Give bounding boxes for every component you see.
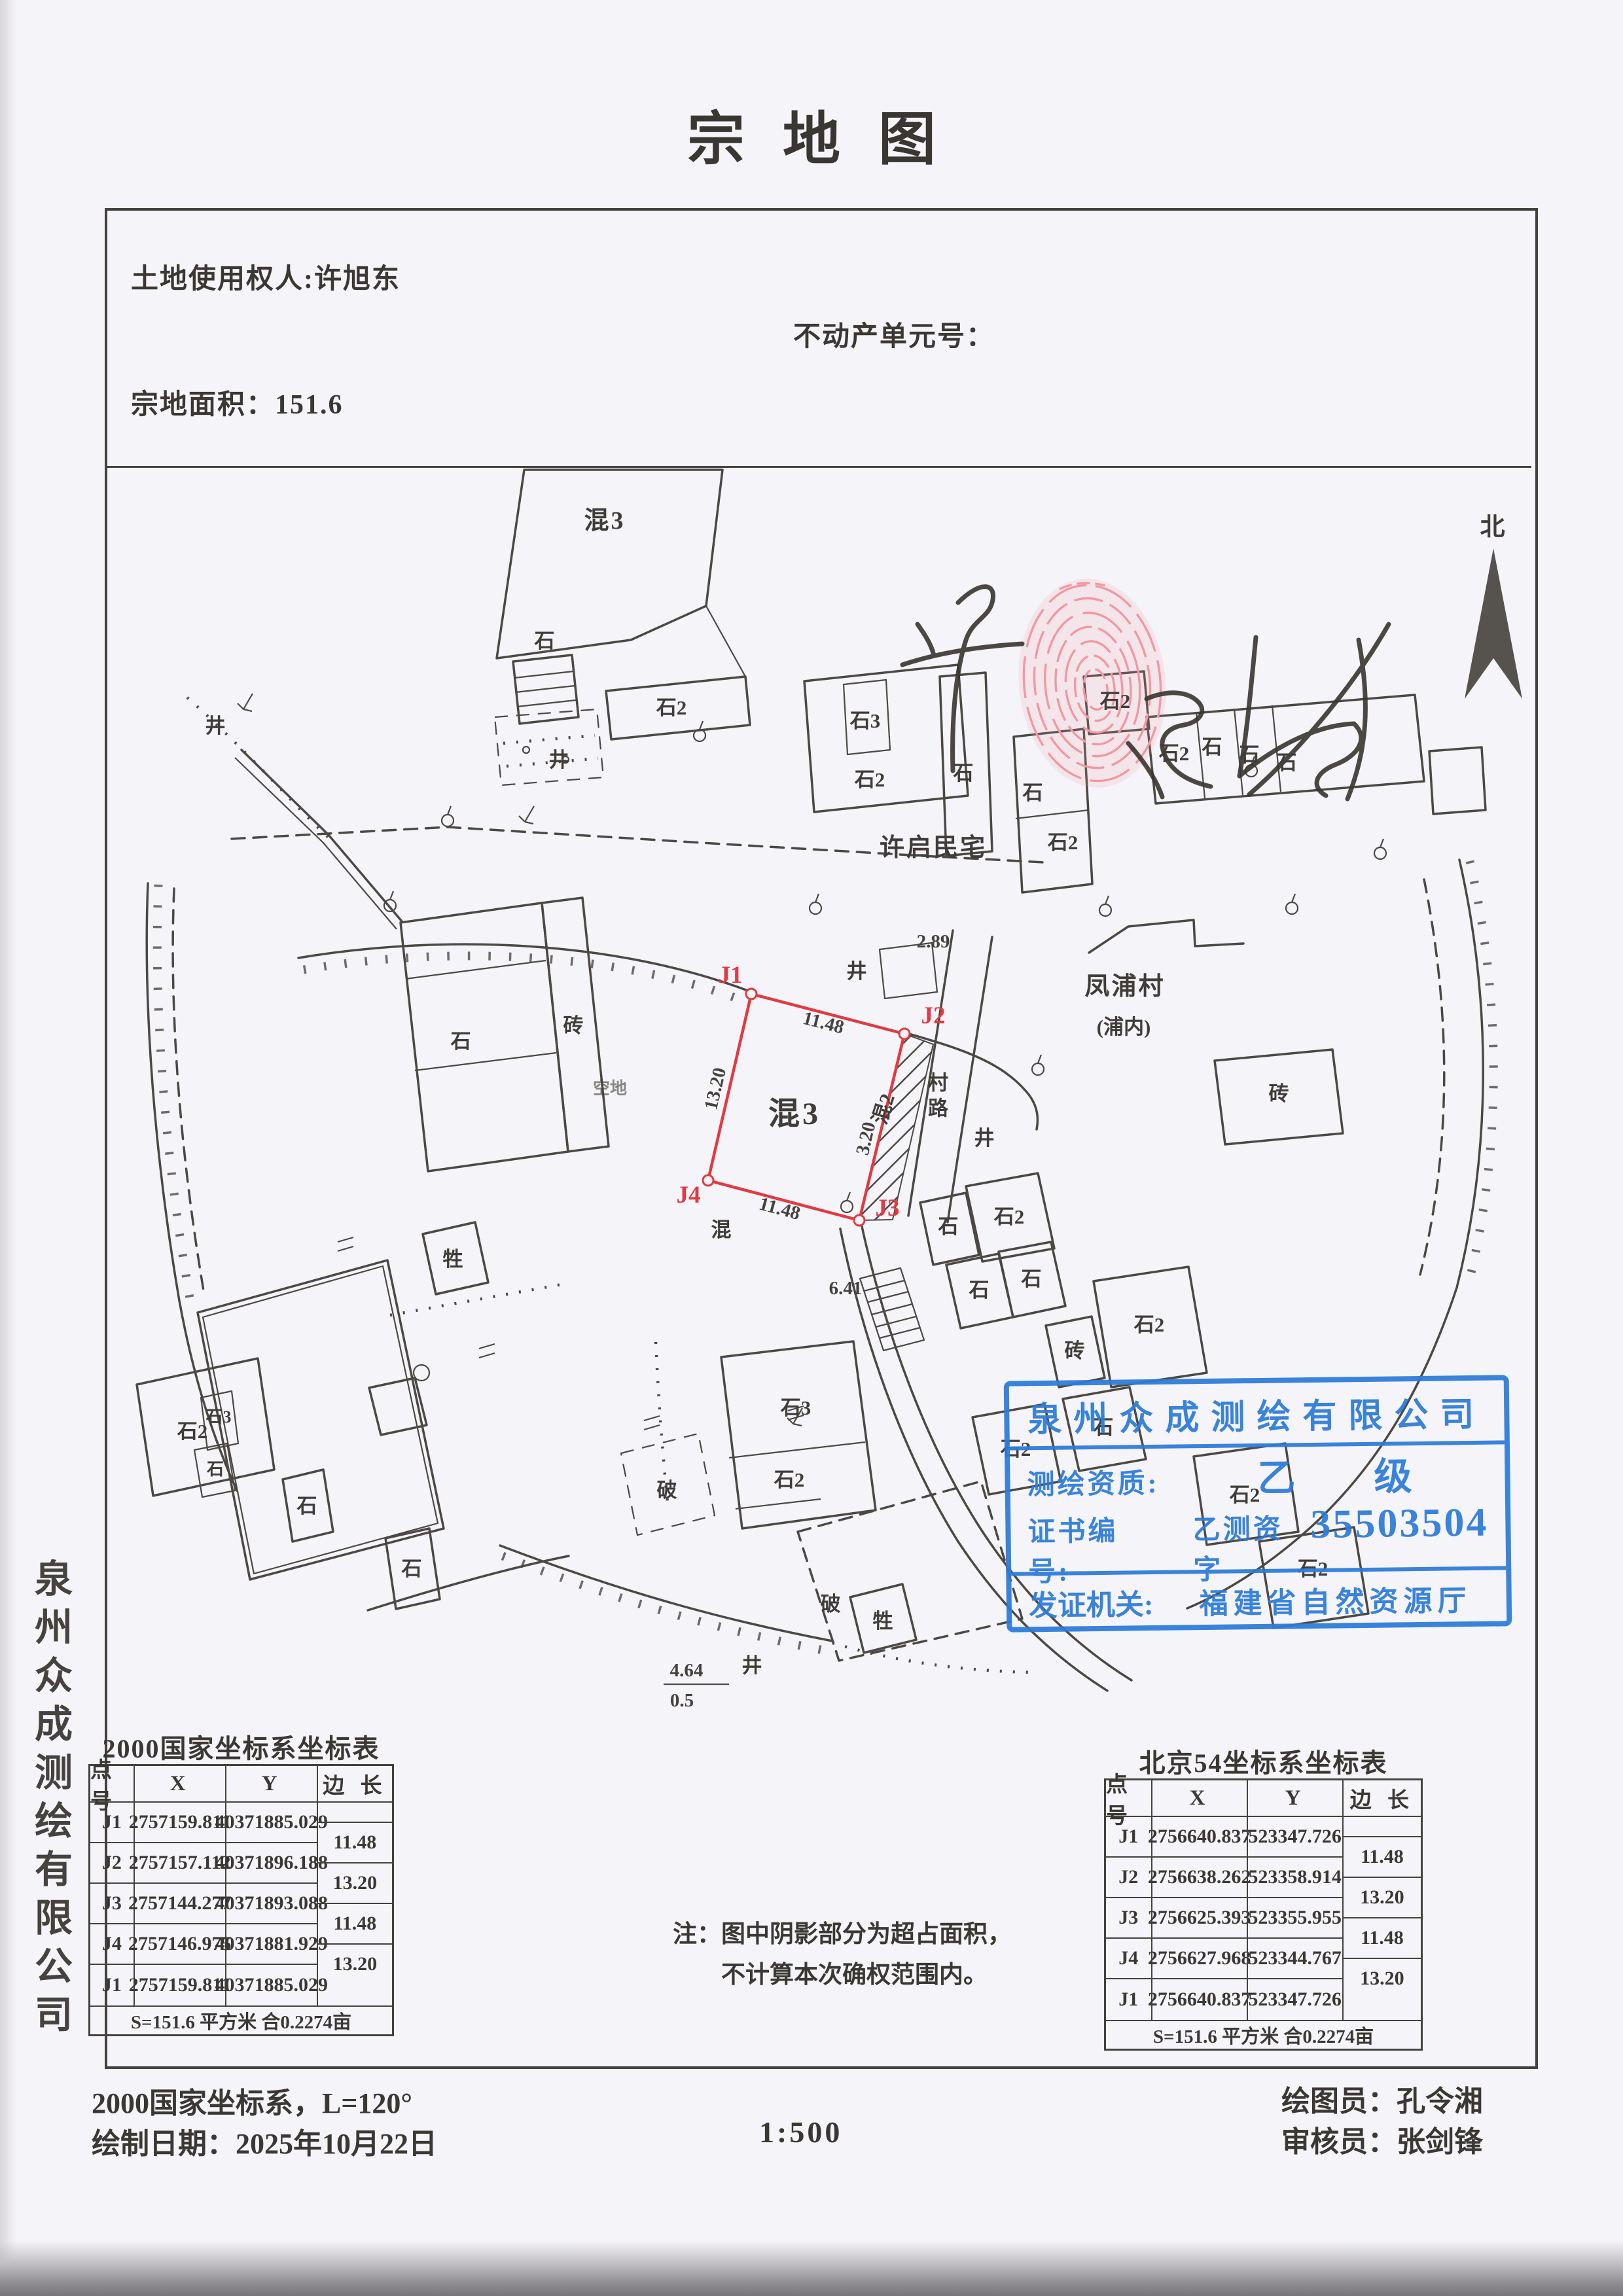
land-label: 石2	[1099, 690, 1131, 713]
scan-edge-bottom	[0, 2241, 1623, 2296]
parcel-area-field: 宗地面积：151.6	[131, 382, 344, 422]
surveyor-stamp: 泉州众成测绘有限公司 测绘资质: 乙 级 证书编号: 乙测资字 35503504…	[1004, 1375, 1512, 1632]
land-label: 石2	[1133, 1313, 1165, 1336]
dim-annotation: 2.89	[917, 931, 950, 952]
land-label: 砖	[1269, 1082, 1289, 1105]
map-scale: 1:500	[759, 2115, 842, 2149]
coord-table-2000-title: 2000国家坐标系坐标表	[88, 1727, 394, 1764]
land-label: 石2	[854, 768, 885, 791]
col-header: 点 号	[1106, 1780, 1151, 1816]
table-row: J2 2756638.262 523358.914	[1106, 1858, 1342, 1898]
edge-length-column: 边 长 11.48 13.20 11.48 13.20	[317, 1766, 392, 2005]
north-arrow-icon	[1465, 548, 1522, 699]
land-label: 破	[657, 1479, 677, 1502]
dim-annotation: 0.5	[670, 1690, 694, 1711]
coord-table-bj54-title: 北京54坐标系坐标表	[1104, 1742, 1423, 1778]
stamp-cert-label: 证书编号:	[1027, 1508, 1158, 1589]
point-label-j3: J3	[876, 1195, 900, 1222]
land-label: 石3	[849, 709, 881, 732]
dim-top: 11.48	[800, 1008, 846, 1038]
stamp-company: 泉州众成测绘有限公司	[1009, 1380, 1505, 1450]
table-row: J2 2757157.112 40371896.188	[90, 1843, 317, 1884]
edge-cell: 13.20	[318, 1945, 392, 1984]
land-label: 混	[711, 1218, 732, 1241]
land-label: 石	[1239, 743, 1260, 766]
land-label: 混3	[584, 507, 625, 535]
header-map-divider	[106, 466, 1531, 468]
dim-annotation: 6.41	[829, 1278, 863, 1299]
well-symbol: 井	[742, 1654, 762, 1677]
edge-cell: 11.48	[318, 1823, 392, 1863]
well-symbol: 井	[549, 749, 569, 771]
land-label: 石	[1276, 751, 1297, 774]
coord-table-bj54: 北京54坐标系坐标表 点 号 X Y J1 2756640.837 523347…	[1104, 1742, 1423, 2051]
stamp-middle-section: 测绘资质: 乙 级 证书编号: 乙测资字 35503504	[1010, 1444, 1506, 1576]
col-header: Y	[1247, 1780, 1342, 1816]
margin-company-name: 泉州众成测绘有限公司	[22, 1559, 77, 2082]
stamp-grade-suffix: 级	[1374, 1445, 1412, 1501]
coord-table-2000-frame: 点 号 X Y J1 2757159.811 40371885.029 J2 2…	[88, 1764, 394, 2036]
land-label: 牲	[873, 1610, 893, 1633]
land-label: 石2	[1158, 742, 1190, 765]
land-label: 石	[1021, 1267, 1042, 1290]
table-row: J1 2756640.837 523347.726	[1106, 1979, 1342, 2020]
parcel-type-label: 混3	[768, 1097, 821, 1131]
table-row: J1 2756640.837 523347.726	[1106, 1817, 1342, 1858]
land-label: 石2	[177, 1420, 208, 1443]
land-label: 石3	[780, 1396, 811, 1419]
point-label-j2: J2	[921, 1002, 946, 1029]
land-label: 砖	[563, 1014, 584, 1037]
stamp-grade-label: 测绘资质:	[1027, 1461, 1160, 1502]
owner-field: 土地使用权人:许旭东	[131, 256, 401, 296]
table-header-row: 点 号 X Y	[1106, 1780, 1342, 1817]
north-arrow: 北	[1465, 514, 1522, 699]
land-label: 石2	[774, 1468, 805, 1491]
road-label: 村路	[921, 1072, 951, 1123]
well-symbol: 井	[847, 960, 867, 983]
note-line-2: 不计算本次确权范围内。	[721, 1954, 988, 1990]
land-label: 石2	[993, 1205, 1025, 1228]
coord-system-note: 2000国家坐标系，L=120°	[92, 2079, 412, 2121]
point-label-j4: J4	[677, 1182, 701, 1209]
stamp-issuer-label: 发证机关:	[1028, 1581, 1153, 1624]
land-label: 石	[1202, 735, 1222, 758]
col-header: X	[1151, 1780, 1247, 1816]
edge-cell: 13.20	[318, 1863, 392, 1904]
land-label: 石	[534, 629, 555, 652]
residence-label: 许启民宅	[880, 834, 987, 862]
table-area-footer: S=151.6 平方米 合0.2274亩	[1106, 2020, 1421, 2049]
table-area-footer: S=151.6 平方米 合0.2274亩	[90, 2005, 392, 2034]
land-label: 石2	[1047, 831, 1079, 854]
land-label: 牲	[443, 1248, 463, 1271]
col-header: X	[134, 1766, 225, 1801]
reviewer: 审核员：张剑锋	[1281, 2118, 1483, 2160]
scanned-parcel-map-page: { "title": "宗地图", "header": { "owner": "…	[0, 0, 1623, 2296]
page-title: 宗地图	[0, 93, 1623, 176]
table-row: J4 2756627.968 523344.767	[1106, 1939, 1342, 1979]
edge-cell: 11.48	[1344, 1837, 1421, 1878]
table-row: J1 2757159.811 40371885.029	[90, 1965, 317, 2005]
stamp-cert-number: 35503504	[1310, 1500, 1489, 1548]
unit-number-field: 不动产单元号：	[793, 314, 995, 354]
scan-edge-left	[0, 0, 17, 2296]
land-label: 石3	[205, 1407, 231, 1426]
table-header-row: 点 号 X Y	[90, 1766, 317, 1803]
land-label: 石	[1022, 781, 1043, 804]
land-label: 空地	[593, 1078, 627, 1098]
well-symbol: 井	[974, 1127, 995, 1150]
edge-cell: 13.20	[1344, 1878, 1421, 1918]
well-symbol: 井	[205, 715, 226, 737]
land-label: 石	[206, 1460, 224, 1479]
land-label: 石	[401, 1557, 422, 1580]
land-label: 石	[450, 1030, 471, 1053]
table-row: J4 2757146.975 40371881.929	[90, 1924, 317, 1965]
stamp-cert-prefix: 乙测资字	[1192, 1506, 1311, 1587]
land-label: 石	[953, 762, 974, 785]
village-subname: (浦内)	[1097, 1016, 1151, 1038]
edge-cell: 11.48	[1344, 1918, 1421, 1959]
table-row: J3 2757144.277 40371893.088	[90, 1884, 317, 1924]
village-name: 凤浦村	[1084, 973, 1165, 1000]
land-label: 砖	[1065, 1339, 1085, 1362]
note-line-1: 注：图中阴影部分为超占面积，	[673, 1914, 1012, 1949]
coord-table-2000: 2000国家坐标系坐标表 点 号 X Y J1 2757159.811 4037…	[88, 1727, 394, 2036]
table-row: J1 2757159.811 40371885.029	[90, 1803, 317, 1843]
col-header: 边 长	[1344, 1780, 1421, 1817]
stamp-issuer-value: 福建省自然资源厅	[1199, 1577, 1472, 1622]
edge-cell: 11.48	[318, 1904, 392, 1945]
draw-date: 绘制日期：2025年10月22日	[92, 2120, 437, 2162]
drafter: 绘图员：孔令湘	[1281, 2077, 1483, 2119]
dim-annotation: 4.64	[670, 1660, 704, 1681]
land-label: 石2	[656, 696, 687, 719]
land-label: 石	[969, 1279, 990, 1301]
coord-table-bj54-frame: 点 号 X Y J1 2756640.837 523347.726 J2 275…	[1104, 1778, 1423, 2051]
edge-cell: 13.20	[1344, 1959, 1421, 1998]
land-label: 石	[938, 1215, 959, 1238]
land-label: 石	[296, 1494, 317, 1517]
dim-bottom: 11.48	[757, 1193, 802, 1224]
point-label-j1: J1	[719, 962, 743, 989]
stamp-grade-value: 乙	[1257, 1447, 1296, 1502]
table-row: J3 2756625.393 523355.955	[1106, 1898, 1342, 1939]
col-header: Y	[225, 1766, 317, 1801]
edge-length-column: 边 长 11.48 13.20 11.48 13.20	[1342, 1780, 1421, 2020]
land-label: 破	[821, 1593, 841, 1616]
col-header: 点 号	[90, 1766, 134, 1801]
north-label: 北	[1480, 514, 1507, 541]
col-header: 边 长	[318, 1766, 392, 1803]
